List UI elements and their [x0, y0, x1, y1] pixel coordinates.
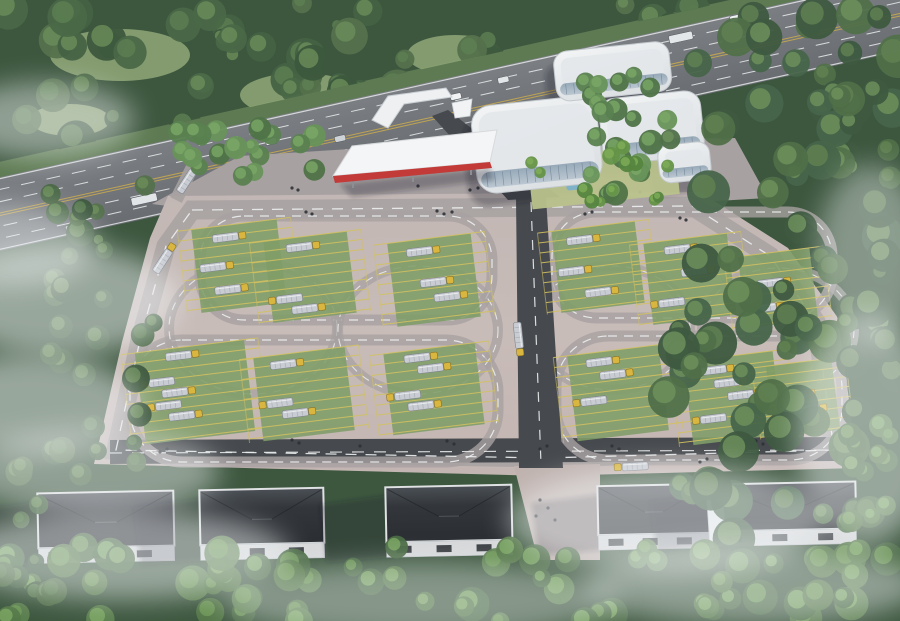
truck-cab [226, 261, 234, 269]
tree-highlight [211, 146, 223, 158]
truck-cab [296, 358, 304, 366]
tree-highlight [750, 22, 770, 42]
tree-highlight [187, 124, 199, 136]
tree-highlight [810, 92, 824, 106]
tree-highlight [769, 416, 791, 438]
pedestrian [545, 444, 548, 447]
tree-highlight [870, 7, 883, 20]
tree-highlight [728, 281, 750, 303]
tree-highlight [170, 11, 189, 30]
truck-cab [650, 301, 658, 309]
truck-cab [308, 407, 316, 415]
truck-cab [195, 410, 203, 418]
tree-highlight [779, 341, 791, 353]
tree-highlight [816, 66, 828, 78]
truck-cab [446, 276, 454, 284]
pedestrian [290, 186, 293, 189]
truck-cab [268, 297, 276, 305]
tree-highlight [589, 129, 600, 140]
pedestrian [617, 447, 620, 450]
tree-highlight [397, 52, 408, 63]
tree-highlight [684, 355, 699, 370]
tree-highlight [608, 186, 614, 192]
pedestrian [304, 210, 307, 213]
tree-highlight [356, 0, 372, 16]
pedestrian [296, 188, 299, 191]
tree-highlight [306, 161, 318, 173]
tree-highlight [184, 149, 195, 160]
pedestrian [358, 444, 361, 447]
tree-highlight [654, 193, 660, 199]
tree-highlight [788, 215, 806, 233]
pedestrian [290, 438, 293, 441]
tree-highlight [821, 114, 841, 134]
tree-highlight [235, 168, 246, 179]
tree-highlight [750, 88, 771, 109]
tree-highlight [283, 80, 296, 93]
pedestrian [761, 442, 764, 445]
tree-highlight [306, 126, 318, 138]
pedestrian [590, 210, 593, 213]
pedestrian [442, 212, 445, 215]
tree-highlight [758, 383, 778, 403]
pedestrian [450, 210, 453, 213]
truck-cab [626, 369, 634, 377]
tree-highlight [722, 22, 743, 43]
tree-highlight [653, 380, 676, 403]
pedestrian [610, 444, 613, 447]
truck-cab [443, 362, 451, 370]
tree-highlight [627, 68, 636, 77]
tree-highlight [91, 25, 113, 47]
truck-cab [312, 241, 320, 249]
truck-cab [188, 386, 196, 394]
truck-cab [434, 400, 442, 408]
tree-highlight [578, 74, 589, 85]
truck-cab [430, 352, 438, 360]
scene [0, 0, 900, 621]
tree-highlight [52, 1, 74, 23]
tree-highlight [335, 21, 355, 41]
tree-highlight [591, 77, 601, 87]
tree-highlight [785, 52, 800, 67]
tree-highlight [686, 248, 707, 269]
tree-highlight [617, 141, 625, 149]
truck-cab [611, 286, 619, 294]
truck-cab [573, 399, 581, 407]
tree-highlight [137, 177, 148, 188]
tree-highlight [723, 435, 746, 458]
tree-highlight [627, 112, 636, 121]
tree-highlight [499, 539, 514, 554]
tree-highlight [293, 136, 304, 147]
tree-highlight [841, 43, 854, 56]
tree-highlight [585, 168, 594, 177]
tree-highlight [579, 184, 588, 193]
truck-cab [191, 350, 199, 358]
tree-highlight [831, 87, 843, 99]
tree-highlight [227, 138, 240, 151]
tree-highlight [642, 132, 655, 145]
pedestrian [310, 212, 313, 215]
tree-highlight [74, 201, 86, 213]
tree-highlight [536, 168, 542, 174]
truck-cab [318, 303, 326, 311]
tree-highlight [692, 175, 716, 199]
tree-highlight [880, 141, 892, 153]
tree-highlight [660, 112, 671, 123]
tree-highlight [761, 180, 778, 197]
truck-cab [460, 291, 468, 299]
tree-highlight [612, 74, 623, 85]
tree-highlight [643, 80, 654, 91]
tree-highlight [594, 103, 606, 115]
truck-cab [584, 265, 592, 273]
pedestrian [678, 216, 681, 219]
truck-cab [238, 231, 246, 239]
tree-highlight [663, 161, 670, 168]
tree-highlight [777, 304, 797, 324]
tree-highlight [806, 144, 828, 166]
truck-cab [692, 417, 700, 425]
tree-highlight [117, 39, 135, 57]
truck-cab [386, 394, 394, 402]
truck-cab [612, 356, 620, 364]
tree-highlight [43, 186, 54, 197]
truck-cab [241, 284, 249, 292]
pedestrian [698, 460, 701, 463]
pedestrian [705, 457, 708, 460]
truck-cab [432, 246, 440, 254]
pedestrian [583, 212, 586, 215]
tree-highlight [663, 331, 686, 354]
stall-green-pad [253, 347, 355, 442]
tree-highlight [604, 149, 614, 159]
pedestrian [684, 218, 687, 221]
tree-highlight [190, 76, 205, 91]
tree-highlight [299, 48, 319, 68]
tree-highlight [586, 195, 594, 203]
tree-highlight [388, 538, 401, 551]
tree-highlight [865, 81, 879, 95]
tree-highlight [687, 52, 703, 68]
tree-highlight [251, 119, 264, 132]
tree-highlight [197, 1, 215, 19]
tree-highlight [798, 317, 813, 332]
tree-highlight [199, 601, 214, 616]
tree-highlight [735, 365, 748, 378]
warehouse-roof [385, 485, 512, 543]
tree-highlight [720, 248, 735, 263]
truck-cab [259, 401, 267, 409]
tree-highlight [705, 115, 724, 134]
tree-highlight [687, 301, 702, 316]
pedestrian [435, 209, 438, 212]
tree-highlight [171, 123, 183, 135]
tree-highlight [663, 131, 674, 142]
pedestrian [538, 447, 541, 450]
aerial-rendering [0, 0, 900, 621]
tree-highlight [775, 281, 787, 293]
warehouse-shadow [319, 495, 390, 562]
tree-highlight [221, 27, 237, 43]
tree-highlight [735, 406, 755, 426]
tree-highlight [125, 367, 140, 382]
tree-highlight [801, 1, 824, 24]
tree-highlight [461, 38, 477, 54]
pedestrian [297, 441, 300, 444]
tree-highlight [777, 145, 796, 164]
tree-highlight [527, 158, 534, 165]
tree-highlight [621, 157, 630, 166]
warehouse-door [437, 545, 452, 552]
pedestrian [452, 442, 455, 445]
truck-cab [593, 234, 601, 242]
tree-highlight [250, 35, 266, 51]
truck-cab [516, 348, 524, 356]
pedestrian [445, 439, 448, 442]
